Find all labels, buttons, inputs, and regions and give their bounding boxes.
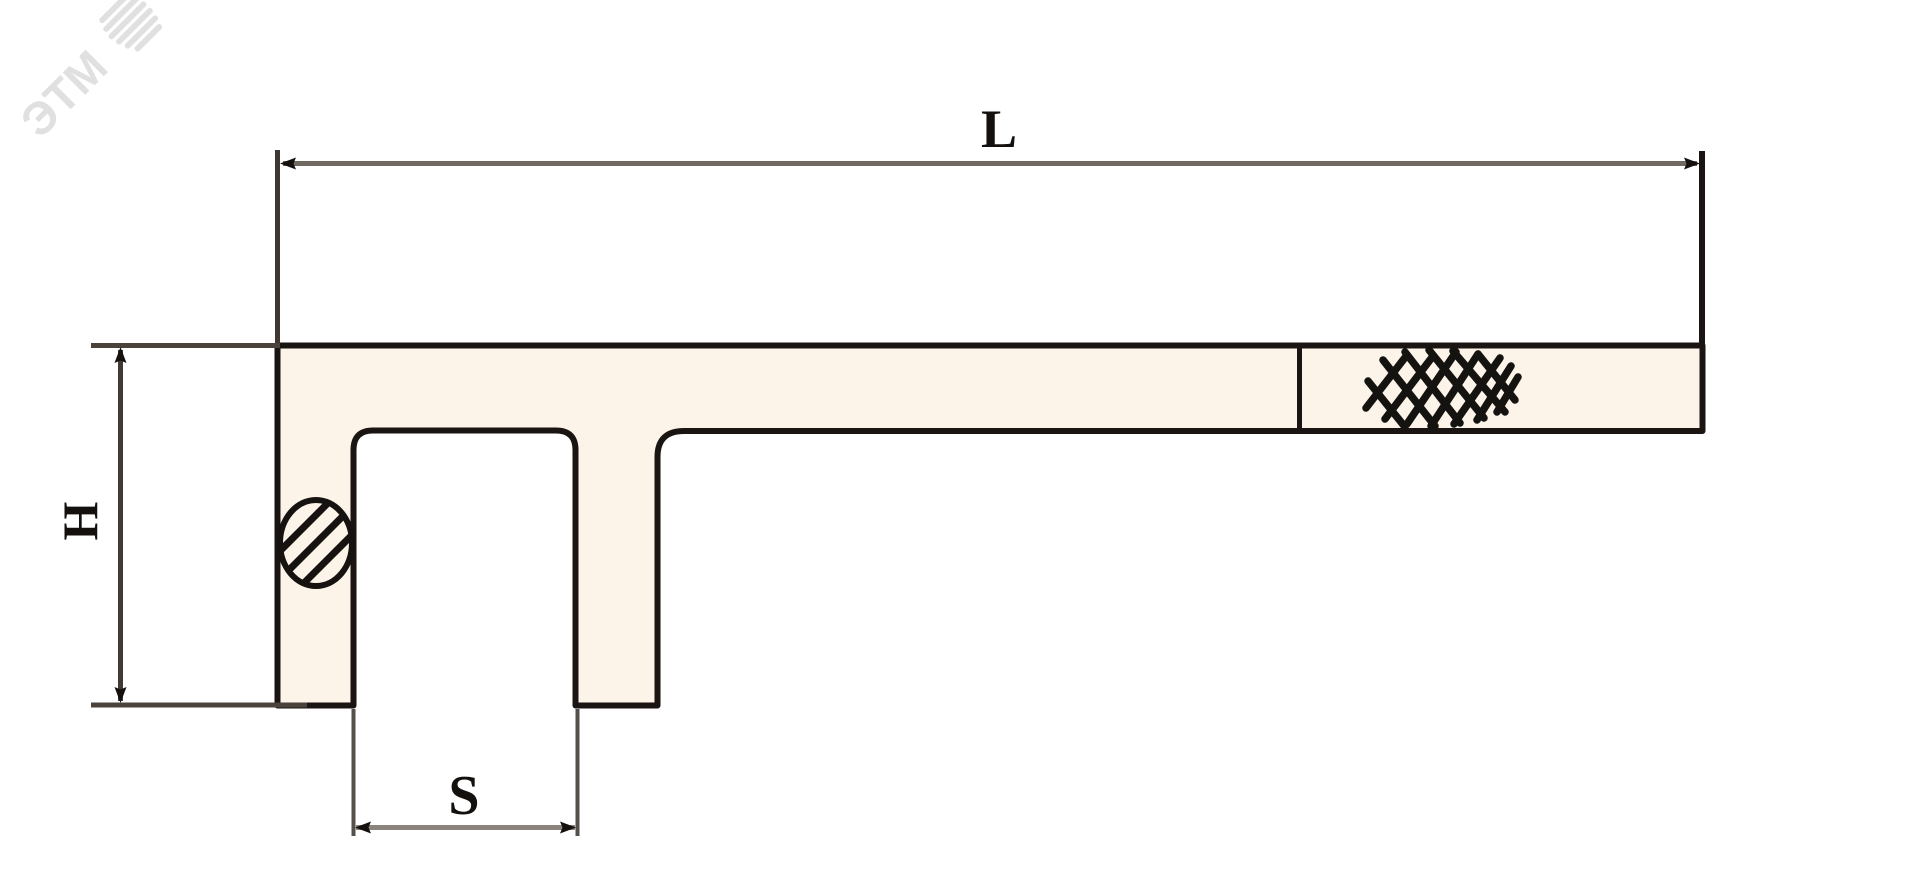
svg-text:S: S xyxy=(448,765,479,827)
svg-text:L: L xyxy=(981,99,1017,159)
svg-text:H: H xyxy=(52,501,108,540)
svg-text:ЭТМ: ЭТМ xyxy=(10,40,117,147)
